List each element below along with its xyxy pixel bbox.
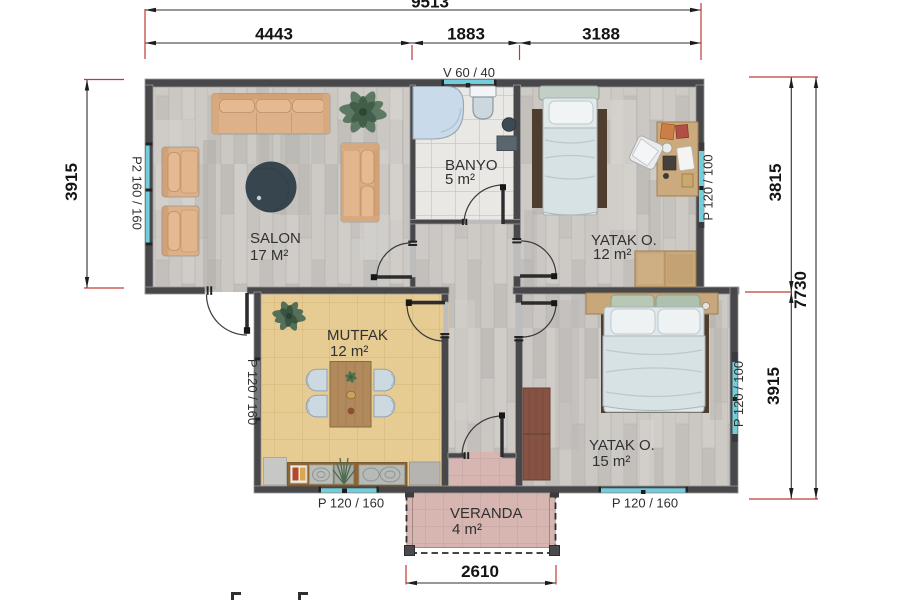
svg-text:7730: 7730 <box>791 271 810 309</box>
svg-text:3188: 3188 <box>582 25 620 44</box>
svg-text:4443: 4443 <box>255 25 293 44</box>
svg-text:P 120 / 160: P 120 / 160 <box>318 496 384 511</box>
svg-text:MUTFAK: MUTFAK <box>327 327 388 344</box>
svg-text:4 m²: 4 m² <box>452 521 482 538</box>
svg-text:3915: 3915 <box>764 367 783 405</box>
svg-text:YATAK O.: YATAK O. <box>589 437 655 454</box>
svg-text:P2 160 / 160: P2 160 / 160 <box>130 156 145 230</box>
svg-text:3915: 3915 <box>62 163 81 201</box>
svg-text:SALON: SALON <box>250 230 301 247</box>
svg-text:17 M²: 17 M² <box>250 247 288 264</box>
svg-text:VERANDA: VERANDA <box>450 505 523 522</box>
svg-text:1883: 1883 <box>447 25 485 44</box>
svg-text:9513: 9513 <box>411 0 449 12</box>
svg-text:3815: 3815 <box>766 164 785 202</box>
svg-text:12 m²: 12 m² <box>330 343 368 360</box>
svg-text:12 m²: 12 m² <box>593 246 631 263</box>
svg-text:15 m²: 15 m² <box>592 453 630 470</box>
svg-text:P 120 / 100: P 120 / 100 <box>731 361 746 427</box>
svg-text:5 m²: 5 m² <box>445 171 475 188</box>
svg-text:V 60 / 40: V 60 / 40 <box>443 65 495 80</box>
svg-text:P 120 / 100: P 120 / 100 <box>701 154 716 220</box>
svg-text:P 120 / 160: P 120 / 160 <box>245 359 260 425</box>
svg-text:P 120 / 160: P 120 / 160 <box>612 496 678 511</box>
svg-text:2610: 2610 <box>461 562 499 581</box>
